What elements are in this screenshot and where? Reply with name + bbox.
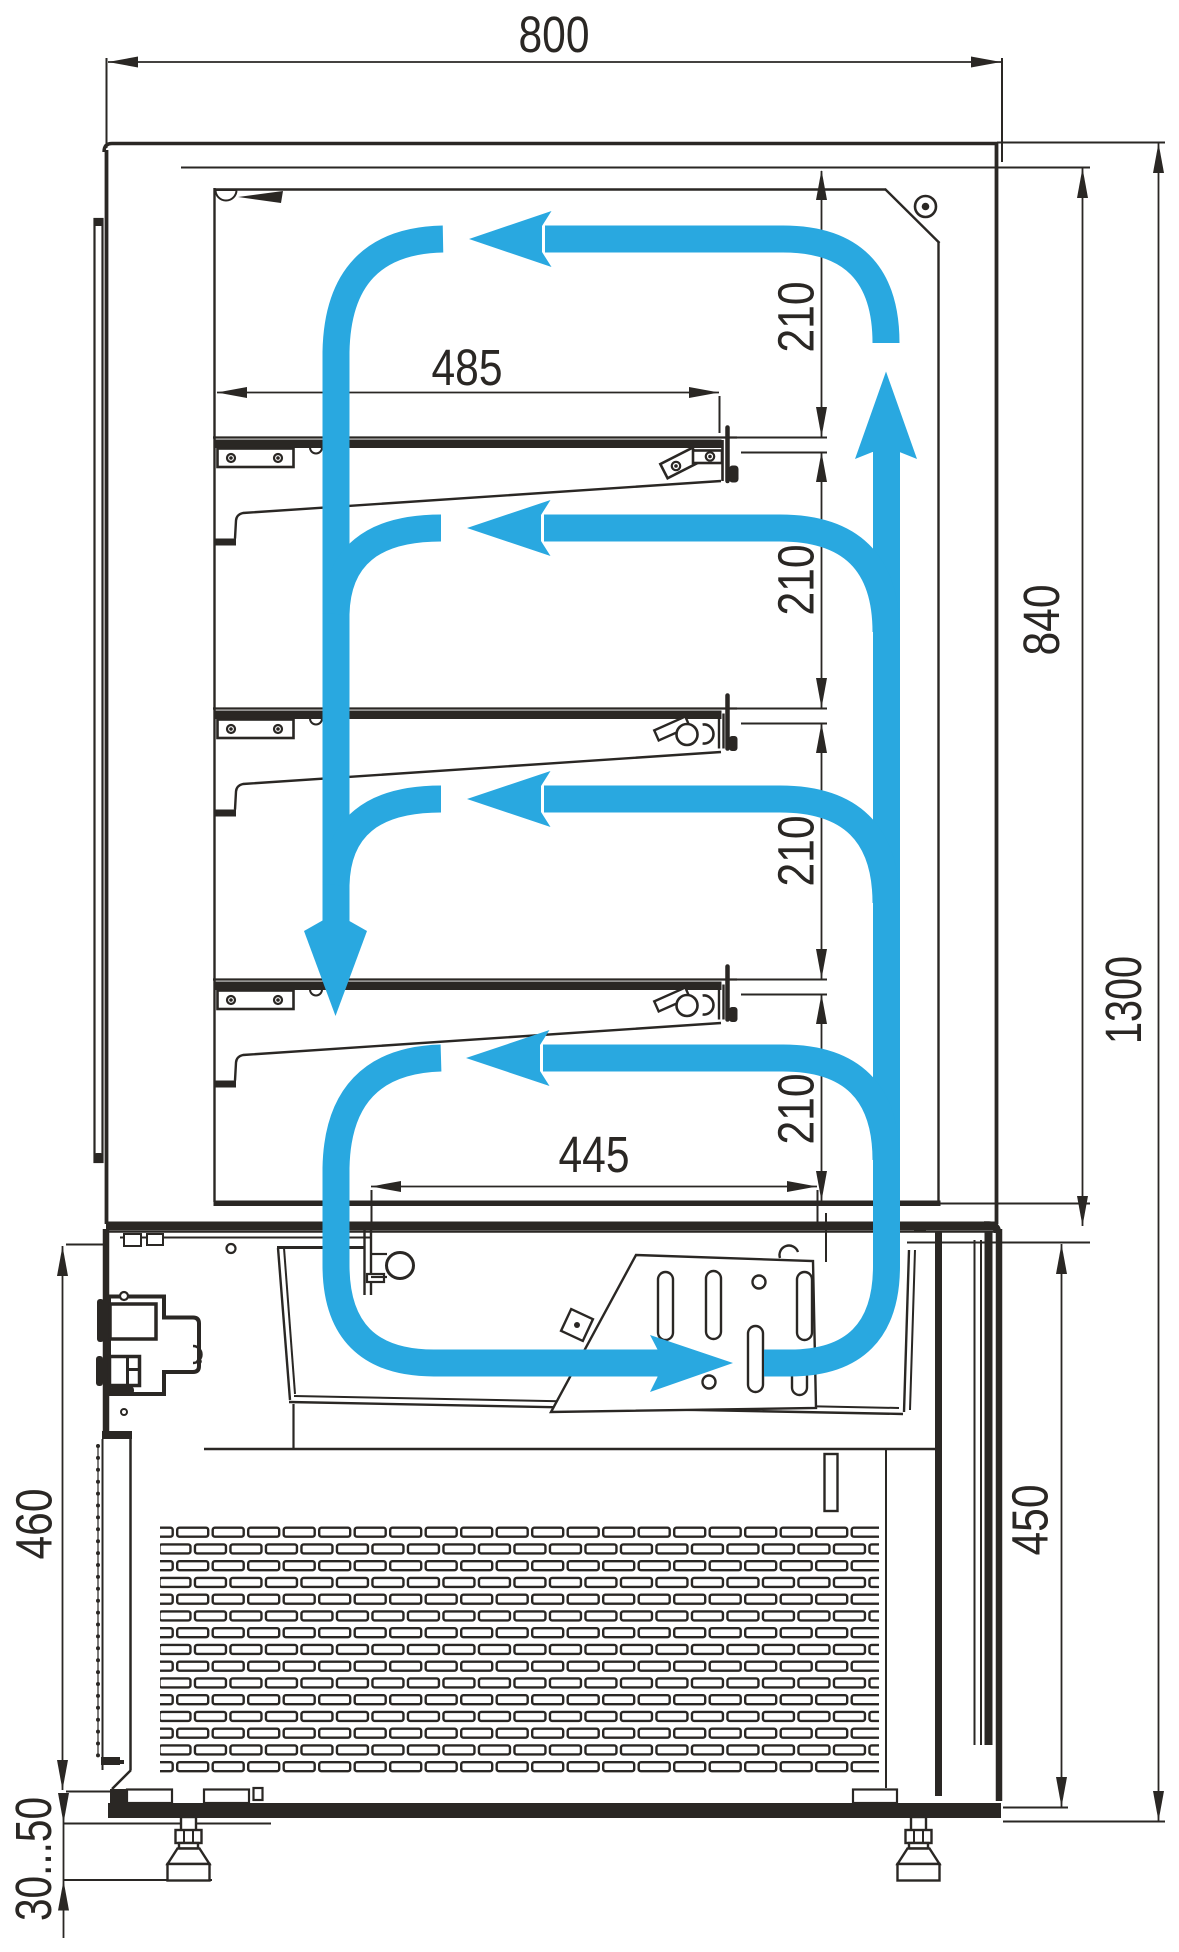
- svg-text:460: 460: [6, 1489, 63, 1560]
- svg-text:210: 210: [768, 1074, 825, 1145]
- svg-text:210: 210: [768, 545, 825, 616]
- svg-text:210: 210: [768, 282, 825, 353]
- svg-text:840: 840: [1013, 585, 1070, 656]
- svg-text:800: 800: [519, 6, 590, 63]
- svg-text:30...50: 30...50: [5, 1797, 62, 1921]
- svg-text:445: 445: [559, 1126, 630, 1183]
- svg-text:210: 210: [768, 816, 825, 887]
- svg-text:485: 485: [432, 339, 503, 396]
- svg-text:1300: 1300: [1095, 956, 1152, 1044]
- svg-text:450: 450: [1002, 1485, 1059, 1556]
